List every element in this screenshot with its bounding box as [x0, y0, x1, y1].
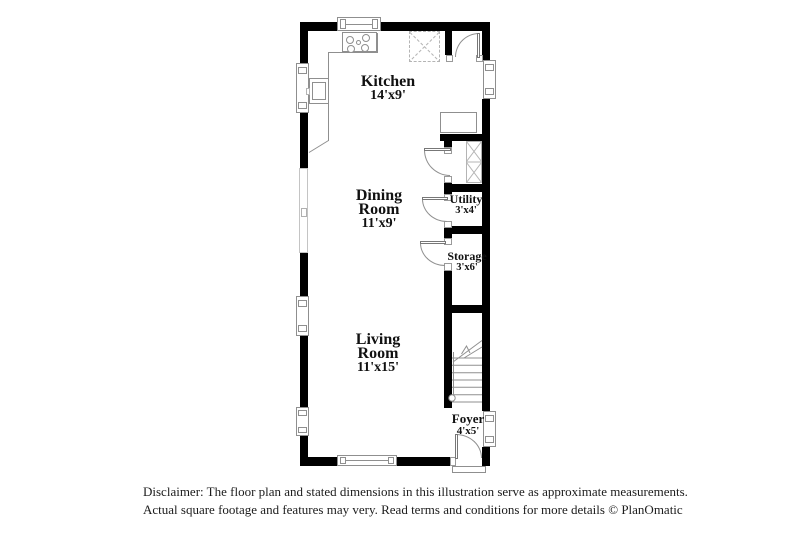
room-name: Foyer — [438, 413, 498, 425]
room-dimensions: 14'x9' — [338, 89, 438, 103]
window-left-living-upper — [296, 296, 309, 336]
wall-closet-bottom — [452, 184, 490, 192]
front-stoop — [452, 466, 486, 473]
wall-utility-bottom — [452, 226, 490, 234]
wall-corridor-segment — [444, 271, 452, 408]
room-name: Kitchen — [338, 75, 438, 89]
disclaimer-text: Disclaimer: The floor plan and stated di… — [143, 483, 688, 518]
door-leaf-closet — [424, 148, 451, 151]
door-arc-alcove — [455, 33, 479, 57]
sink-icon — [309, 78, 329, 104]
room-label-dining: Dining Room 11'x9' — [329, 189, 429, 231]
window-sash — [298, 325, 307, 332]
wall-left-segment — [300, 252, 308, 296]
room-dimensions: 3'x6' — [437, 262, 497, 273]
room-label-foyer: Foyer 4'x5' — [438, 413, 498, 437]
window-top — [337, 17, 381, 31]
window-sash — [388, 457, 394, 464]
wall-left-segment — [300, 436, 308, 466]
wall-left-segment — [300, 22, 308, 63]
door-leaf-entry — [455, 434, 458, 459]
counter-edge-horizontal — [328, 52, 378, 53]
room-dimensions: 11'x15' — [328, 361, 428, 375]
wall-left-segment — [300, 113, 308, 168]
door-jamb — [444, 221, 452, 228]
range-stove-icon — [342, 32, 377, 52]
stove-burner — [361, 44, 369, 52]
stairs-rail-diagonal — [453, 341, 482, 363]
wall-right-segment — [482, 447, 490, 466]
pantry-cabinet-icon — [409, 31, 440, 62]
faucet-icon — [306, 88, 310, 95]
window-midline — [346, 460, 388, 461]
window-right-kitchen — [483, 60, 496, 99]
stove-burner — [346, 36, 354, 44]
window-sash — [301, 208, 307, 217]
sink-basin — [312, 82, 326, 100]
door-jamb — [444, 176, 452, 183]
wall-left-segment — [300, 336, 308, 407]
door-leaf-alcove — [477, 33, 480, 58]
room-label-kitchen: Kitchen 14'x9' — [338, 75, 438, 103]
window-sash — [298, 102, 307, 109]
room-name: Storage — [437, 251, 497, 262]
refrigerator-counter-icon — [440, 112, 477, 133]
water-heater-icon — [466, 141, 482, 183]
room-name: Room — [328, 347, 428, 361]
stairs-icon — [449, 341, 482, 403]
window-sash — [298, 427, 307, 433]
window-left-dining-tall — [299, 168, 308, 253]
door-arc-closet — [424, 150, 450, 176]
door-leaf-storage — [420, 241, 446, 244]
room-dimensions: 3'x4' — [436, 205, 496, 216]
stove-burner — [356, 40, 361, 45]
window-sash — [298, 67, 307, 74]
wall-closet-top — [440, 134, 490, 141]
window-sash — [298, 410, 307, 416]
window-sash — [485, 88, 494, 95]
room-name: Utility — [436, 194, 496, 205]
window-sash — [485, 64, 494, 71]
wall-alcove-left — [445, 22, 452, 55]
wall-right-segment — [482, 22, 490, 60]
room-dimensions: 11'x9' — [329, 217, 429, 231]
wall-top — [300, 22, 490, 31]
window-sash — [372, 19, 378, 29]
counter-edge-right — [377, 33, 378, 52]
room-label-living: Living Room 11'x15' — [328, 333, 428, 375]
counter-end-diagonal — [309, 141, 329, 153]
room-label-storage: Storage 3'x6' — [437, 251, 497, 273]
door-arc-entry — [456, 434, 482, 458]
window-sash — [298, 300, 307, 307]
room-name: Room — [329, 203, 429, 217]
wall-corridor-segment — [444, 228, 452, 238]
stairs-direction-chevron — [462, 346, 471, 354]
room-dimensions: 4'x5' — [438, 425, 498, 437]
window-bottom — [337, 455, 397, 466]
floor-plan-page: Kitchen 14'x9' Dining Room 11'x9' Living… — [0, 0, 800, 533]
window-midline — [346, 24, 372, 25]
disclaimer-line-2: Actual square footage and features may v… — [143, 501, 688, 519]
door-jamb — [446, 55, 453, 62]
stove-burner — [362, 34, 370, 42]
room-label-utility: Utility 3'x4' — [436, 194, 496, 216]
stairs-rail-diagonal — [464, 347, 482, 358]
window-sash — [485, 436, 494, 443]
window-left-living-lower — [296, 407, 309, 436]
disclaimer-line-1: Disclaimer: The floor plan and stated di… — [143, 483, 688, 501]
wall-storage-bottom — [452, 305, 490, 313]
